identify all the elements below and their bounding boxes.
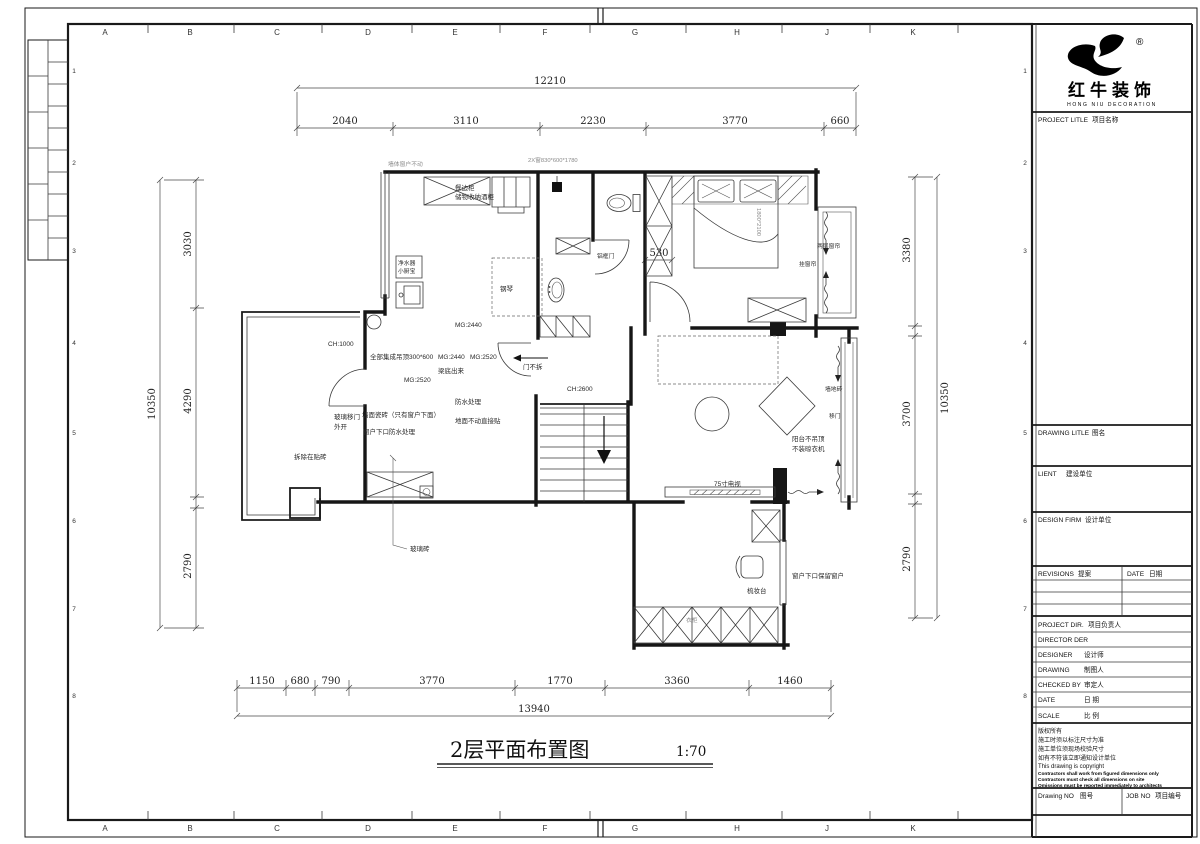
stair-down-arrow bbox=[597, 450, 611, 464]
dim-top: 2040 bbox=[332, 116, 357, 127]
tb-drawing-no-cn: 图号 bbox=[1080, 792, 1094, 800]
tb-note-line: This drawing is copyright bbox=[1038, 764, 1104, 770]
dim-left: 3030 bbox=[183, 231, 194, 256]
grid-number: 2 bbox=[72, 160, 76, 167]
label-be am: 梁底出来 bbox=[438, 366, 465, 375]
toilet bbox=[607, 195, 640, 212]
tb-note-line: 如有不符该立即通知设计单位 bbox=[1038, 754, 1116, 762]
label-sideboard: 餐边柜 bbox=[455, 183, 475, 192]
grid-letter: F bbox=[543, 824, 548, 833]
grid-letter: H bbox=[734, 824, 740, 833]
grid-number: 7 bbox=[1023, 606, 1027, 613]
grid-number: 4 bbox=[72, 340, 76, 347]
grid-number: 8 bbox=[72, 693, 76, 700]
grid-letter: K bbox=[910, 28, 916, 37]
dim-bottom: 3360 bbox=[664, 676, 689, 687]
dim-right: 3700 bbox=[902, 401, 913, 426]
kitchen-window bbox=[381, 172, 389, 298]
tb-design-firm-en: DESIGN FIRM bbox=[1038, 517, 1081, 524]
bedroom-bay-window bbox=[818, 207, 856, 318]
grid-letter: H bbox=[734, 28, 740, 37]
grid-letter: E bbox=[452, 824, 457, 833]
tb-note-line: 版权所有 bbox=[1038, 727, 1062, 735]
brand-logo: ® 红牛装饰 HONG NIU DECORATION bbox=[1067, 34, 1157, 108]
tv-console bbox=[665, 487, 775, 497]
tb-drawing-en: DRAWING bbox=[1038, 667, 1070, 674]
grid-number: 1 bbox=[1023, 68, 1027, 75]
dresser-chair bbox=[736, 556, 763, 578]
tv-side-curtain bbox=[788, 489, 824, 495]
grid-number: 1 bbox=[72, 68, 76, 75]
grid-letter: J bbox=[825, 28, 829, 37]
label-ch2600: CH:2600 bbox=[567, 386, 593, 393]
label-sliding-door: 移门 bbox=[829, 412, 841, 420]
drawing-title-text: 2层平面布置图 bbox=[450, 738, 589, 762]
grid-letter: B bbox=[187, 824, 192, 833]
tb-date-en: DATE bbox=[1038, 697, 1056, 704]
tb-checked-en: CHECKED BY bbox=[1038, 682, 1081, 689]
grid-letter: G bbox=[632, 28, 638, 37]
label-balcony-note2: 不装晾衣机 bbox=[792, 444, 825, 453]
grid-number: 7 bbox=[72, 606, 76, 613]
grid-letter: C bbox=[274, 28, 280, 37]
living-window bbox=[835, 338, 857, 502]
tb-note-line: 施工时须以标注尺寸为准 bbox=[1038, 736, 1104, 744]
registered-mark: ® bbox=[1136, 37, 1144, 48]
dim-530: 530 bbox=[649, 248, 668, 259]
label-mg2520b: MG:2520 bbox=[404, 377, 431, 384]
label-sideboard2: 储物收纳酒柜 bbox=[455, 192, 495, 201]
kitchen-balcony-door bbox=[329, 369, 365, 406]
bedroom-door bbox=[650, 282, 690, 322]
stairs bbox=[540, 404, 628, 502]
dim-bottom: 1150 bbox=[249, 676, 274, 687]
grid-number: 5 bbox=[72, 430, 76, 437]
tb-revisions-en: REVISIONS bbox=[1038, 571, 1075, 578]
pillar bbox=[773, 468, 787, 504]
dim-right: 3380 bbox=[902, 237, 913, 262]
tb-date-cn: 日 期 bbox=[1084, 696, 1099, 704]
plan-annotations: 墙体窗户不动 2X窗830*600*1780 餐边柜 储物收纳酒柜 净水器 小厨… bbox=[294, 156, 844, 624]
dim-top: 660 bbox=[830, 116, 849, 127]
balcony-column bbox=[290, 488, 320, 518]
grid-letters-bottom: A B C D E F G H J K bbox=[102, 824, 916, 833]
grid-letter: J bbox=[825, 824, 829, 833]
dim-left: 4290 bbox=[183, 388, 194, 413]
tb-drawing-no-en: Drawing NO bbox=[1038, 793, 1074, 800]
tb-scale-en: SCALE bbox=[1038, 713, 1060, 720]
label-glass-door: 玻璃移门 bbox=[334, 412, 360, 421]
label-sill-keep: 窗户下口保留窗户 bbox=[792, 571, 844, 580]
grid-letter: E bbox=[452, 28, 457, 37]
bottom-room-window bbox=[780, 540, 786, 605]
hall-door bbox=[498, 343, 531, 376]
round-table bbox=[695, 397, 729, 431]
label-balcony-note1: 阳台不吊顶 bbox=[792, 434, 825, 443]
label-dresser: 梳妆台 bbox=[747, 586, 767, 595]
grid-letter: D bbox=[365, 28, 371, 37]
label-mg2520a: MG:2520 bbox=[470, 354, 497, 361]
tb-client-en: LIENT bbox=[1038, 471, 1057, 478]
label-sill-waterproof: 窗户下口防水处理 bbox=[363, 427, 416, 436]
tb-project-dir-cn: 项目负责人 bbox=[1088, 620, 1121, 629]
grid-number: 4 bbox=[1023, 340, 1027, 347]
label-window-note: 2X窗830*600*1780 bbox=[528, 156, 578, 164]
label-ceiling: 全部集成吊顶300*600 bbox=[370, 352, 434, 361]
tb-scale-cn: 比 例 bbox=[1084, 711, 1099, 720]
label-door-keep: 门不拆 bbox=[523, 362, 543, 371]
tb-drawing-title-cn: 图名 bbox=[1092, 428, 1105, 437]
dim-left-total: 10350 bbox=[147, 388, 158, 420]
tb-project-title-en: PROJECT LITLE bbox=[1038, 117, 1089, 124]
label-wardrobe: 衣柜 bbox=[686, 616, 698, 624]
dim-right: 2790 bbox=[902, 546, 913, 571]
dim-top: 3770 bbox=[722, 116, 747, 127]
label-purifier: 净水器 bbox=[398, 259, 416, 267]
ceiling-dashed bbox=[658, 336, 778, 384]
tb-note-line: Omissions must be reported immediately t… bbox=[1038, 783, 1162, 789]
tb-job-no-cn: 项目编号 bbox=[1155, 791, 1182, 800]
tb-client-cn: 建设单位 bbox=[1066, 469, 1093, 478]
tb-director-en: DIRECTOR DER bbox=[1038, 637, 1088, 644]
title-block: ® 红牛装饰 HONG NIU DECORATION PROJECT LITLE… bbox=[1032, 24, 1192, 837]
brand-name: 红牛装饰 bbox=[1068, 80, 1156, 100]
sheet-frame: A B C D E F G H J K A B C D E F G H J K … bbox=[25, 8, 1197, 837]
label-glass-brick: 玻璃砖 bbox=[410, 544, 430, 553]
grid-number: 6 bbox=[72, 518, 76, 525]
grid-letter: B bbox=[187, 28, 192, 37]
label-tile-note: 墙面瓷砖（只有窗户下面） bbox=[362, 410, 440, 419]
dim-bottom: 1460 bbox=[777, 676, 802, 687]
dim-bottom: 1770 bbox=[547, 676, 572, 687]
ceiling-lamp bbox=[552, 182, 562, 192]
label-open-out: 外开 bbox=[334, 422, 348, 431]
label-kitchen-heater: 小厨宝 bbox=[398, 267, 416, 275]
drawing-title-scale: 1:70 bbox=[676, 744, 706, 760]
windows bbox=[381, 172, 857, 605]
dim-bottom-total: 13940 bbox=[518, 704, 550, 715]
label-bed-size: 1800*2100 bbox=[755, 208, 761, 236]
tb-project-title-cn: 项目名称 bbox=[1092, 115, 1119, 124]
left-revision-table bbox=[28, 40, 68, 260]
grid-number: 5 bbox=[1023, 430, 1027, 437]
floorplan-sheet: A B C D E F G H J K A B C D E F G H J K … bbox=[0, 0, 1200, 844]
doors bbox=[329, 240, 690, 406]
tb-designer-cn: 设计师 bbox=[1084, 650, 1104, 659]
grid-letter: D bbox=[365, 824, 371, 833]
label-mg2440b: MG:2440 bbox=[455, 322, 482, 329]
tb-project-dir-en: PROJECT DIR. bbox=[1038, 622, 1084, 629]
grid-number: 8 bbox=[1023, 693, 1027, 700]
tb-checked-cn: 审定人 bbox=[1084, 680, 1104, 689]
grid-number: 3 bbox=[1023, 248, 1027, 255]
grid-letter: F bbox=[543, 28, 548, 37]
pillar bbox=[770, 322, 786, 336]
dim-right-total: 10350 bbox=[940, 382, 951, 414]
dim-bottom: 3770 bbox=[419, 676, 444, 687]
washbasin bbox=[548, 278, 564, 302]
dim-top-total: 12210 bbox=[534, 76, 566, 87]
label-mg2440a: MG:2440 bbox=[438, 354, 465, 361]
label-floor-note: 地面不动直接贴 bbox=[455, 416, 501, 425]
tb-note-line: Contractors must check all dimensions on… bbox=[1038, 777, 1145, 783]
grid-letter: A bbox=[102, 824, 108, 833]
tb-note-line: 施工单位须现场校验尺寸 bbox=[1038, 745, 1104, 753]
label-waterproof: 防水处理 bbox=[455, 397, 482, 406]
drawing-title: 2层平面布置图 1:70 bbox=[437, 738, 713, 768]
dim-top: 3110 bbox=[453, 116, 478, 127]
label-tv: 75寸电视 bbox=[714, 479, 741, 488]
tb-rev-date-en: DATE bbox=[1127, 571, 1145, 578]
bed bbox=[694, 176, 778, 268]
tb-design-firm-cn: 设计单位 bbox=[1085, 515, 1112, 524]
grid-letter: G bbox=[632, 824, 638, 833]
tb-designer-en: DESIGNER bbox=[1038, 652, 1073, 659]
label-alu-door: 铝框门 bbox=[597, 252, 615, 260]
dim-bottom: 680 bbox=[290, 676, 309, 687]
grid-letters-top: A B C D E F G H J K bbox=[102, 28, 916, 37]
rug-diamond bbox=[759, 377, 815, 435]
door-keep-arrow bbox=[513, 355, 521, 362]
dim-top: 2230 bbox=[580, 116, 605, 127]
tb-note-line: Contractors shall work from figured dime… bbox=[1038, 771, 1159, 777]
brand-name-en: HONG NIU DECORATION bbox=[1067, 102, 1157, 108]
label-curtain-hang: 挂窗帘 bbox=[799, 260, 817, 268]
grid-letter: K bbox=[910, 824, 916, 833]
tb-drawing-cn: 制图人 bbox=[1084, 665, 1104, 674]
grid-number: 2 bbox=[1023, 160, 1027, 167]
dim-bottom: 790 bbox=[321, 676, 340, 687]
tb-drawing-title-en: DRAWING LITLE bbox=[1038, 430, 1090, 437]
dim-left: 2790 bbox=[183, 553, 194, 578]
label-wall-tile: 墙地砖 bbox=[825, 385, 843, 393]
grid-letter: C bbox=[274, 824, 280, 833]
tb-job-no-en: JOB NO bbox=[1126, 793, 1151, 800]
furniture bbox=[367, 176, 815, 643]
label-demolish: 拆除在贴砖 bbox=[294, 452, 327, 461]
label-ch1000: CH:1000 bbox=[328, 341, 354, 348]
label-curtain-two: 两层窗帘 bbox=[817, 242, 840, 250]
grid-number: 3 bbox=[72, 248, 76, 255]
tb-revisions-cn: 提案 bbox=[1078, 569, 1092, 578]
grid-number: 6 bbox=[1023, 518, 1027, 525]
label-piano: 钢琴 bbox=[500, 285, 514, 293]
tb-rev-date-cn: 日期 bbox=[1149, 570, 1163, 578]
tb-notes: 版权所有 施工时须以标注尺寸为准 施工单位须现场校验尺寸 如有不符该立即通知设计… bbox=[1038, 727, 1162, 789]
label-wall-note: 墙体窗户不动 bbox=[388, 160, 423, 168]
grid-letter: A bbox=[102, 28, 108, 37]
